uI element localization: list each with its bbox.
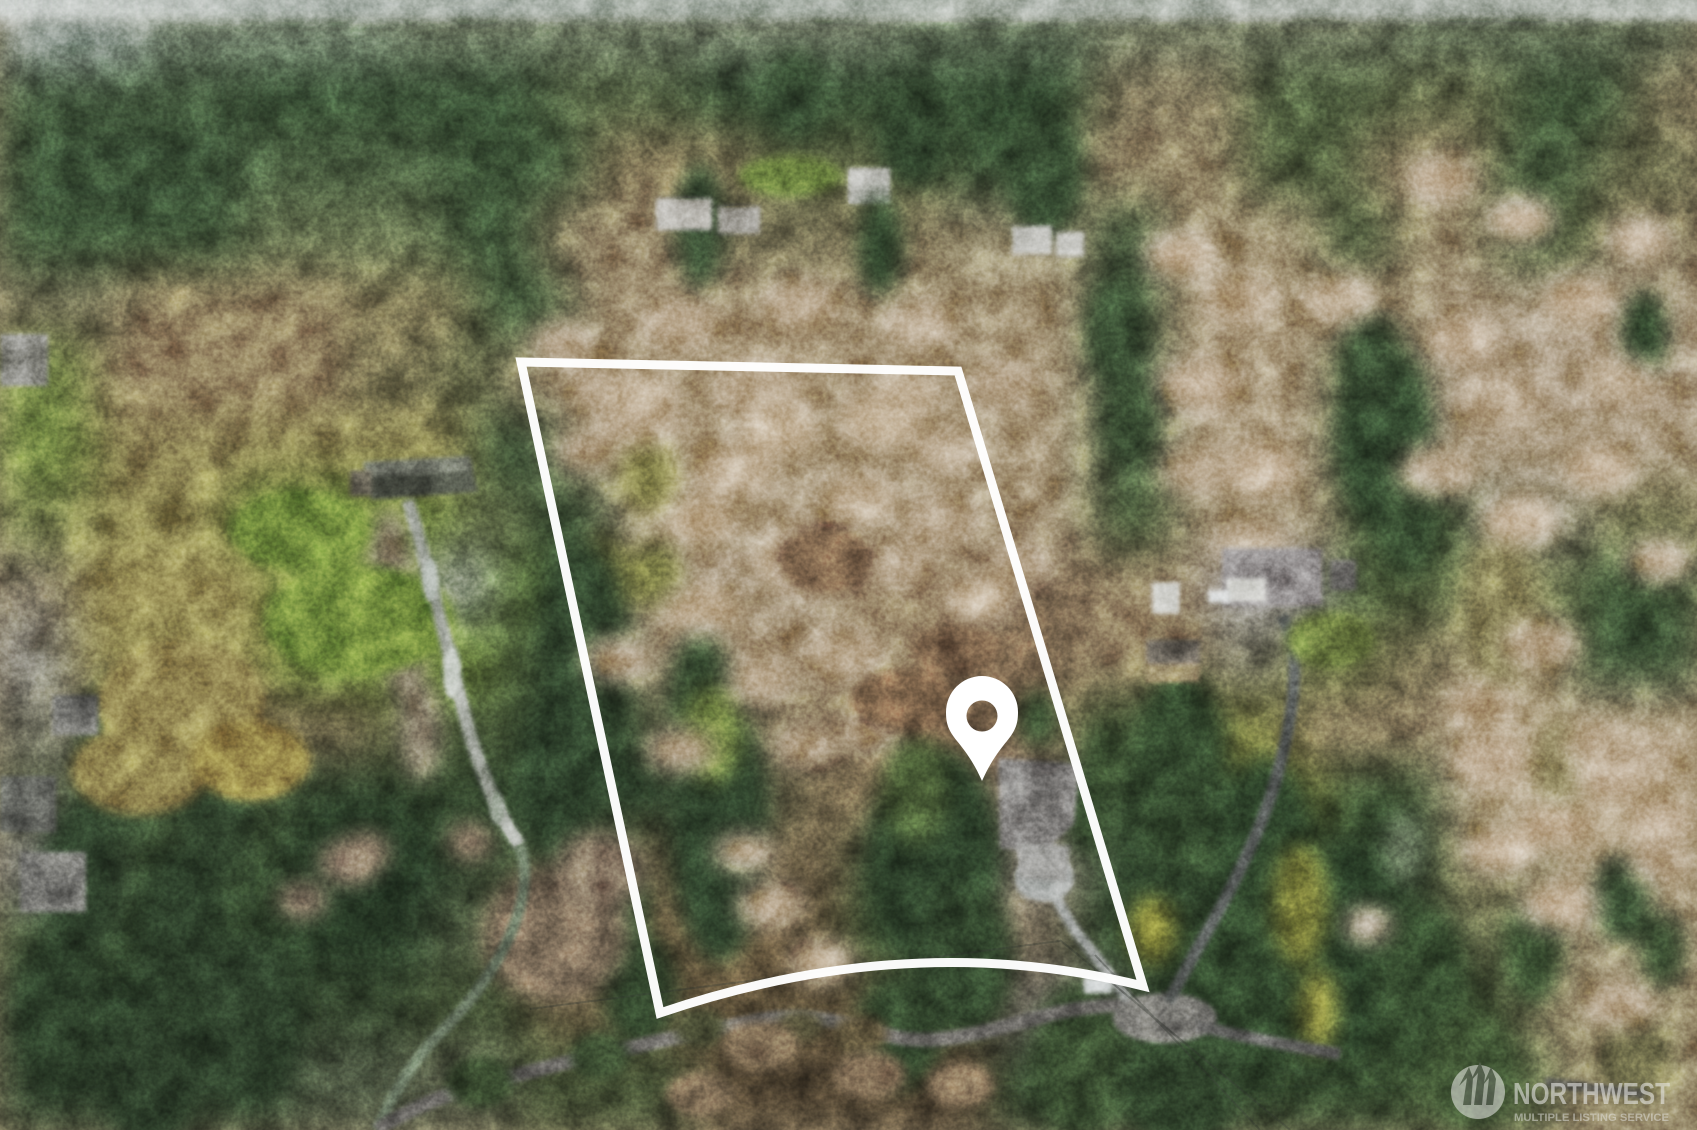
svg-text:NORTHWEST: NORTHWEST — [1513, 1076, 1670, 1111]
svg-text:MULTIPLE LISTING SERVICE: MULTIPLE LISTING SERVICE — [1514, 1112, 1669, 1124]
